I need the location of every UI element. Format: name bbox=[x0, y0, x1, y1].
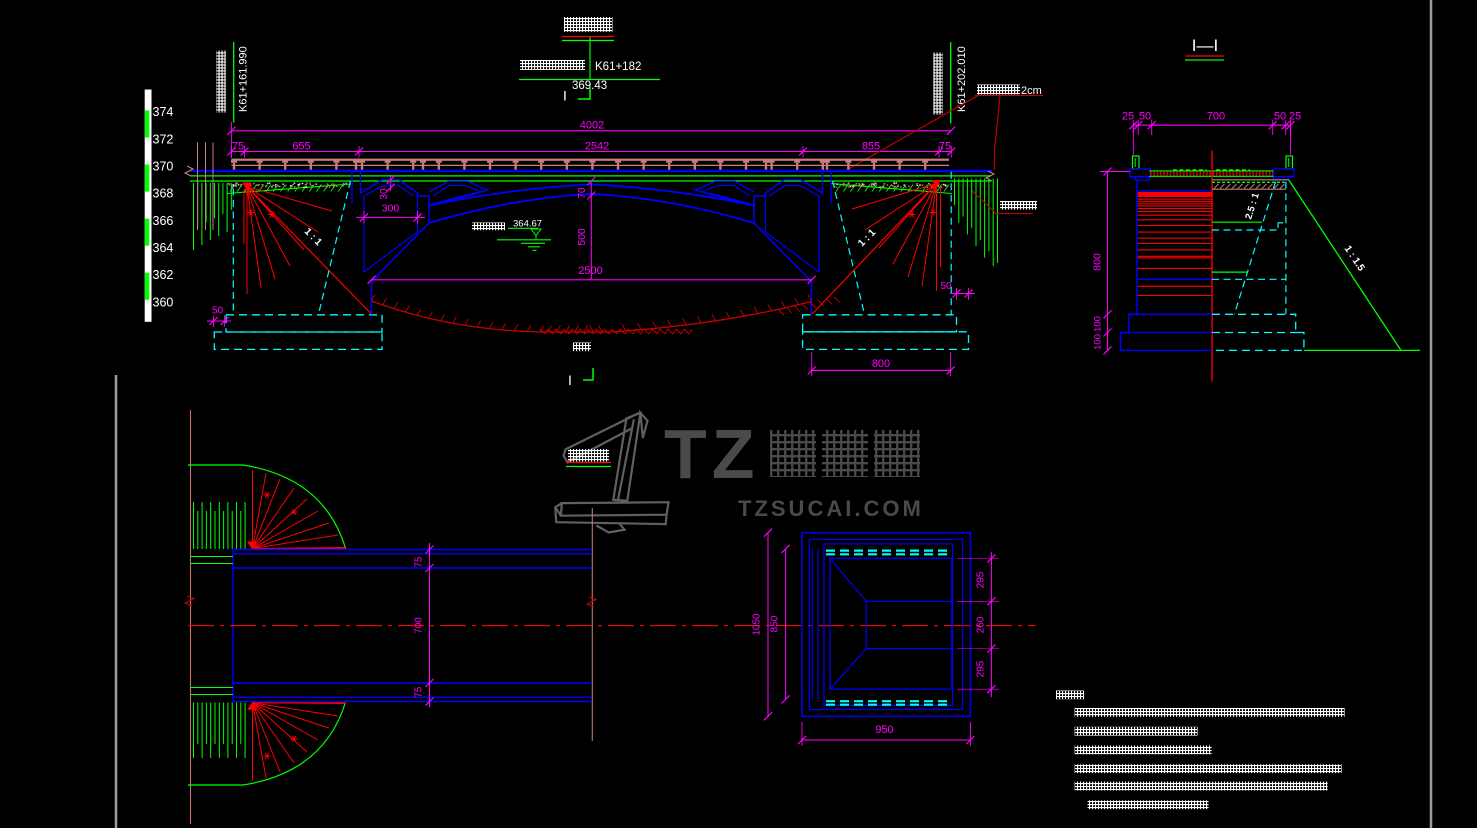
svg-text:50: 50 bbox=[940, 281, 952, 292]
svg-text:2.5 : 1: 2.5 : 1 bbox=[1243, 191, 1262, 221]
svg-text:75: 75 bbox=[414, 686, 425, 698]
svg-text:75: 75 bbox=[414, 556, 425, 568]
svg-text:700: 700 bbox=[1207, 111, 1225, 123]
svg-text:TZSUCAI.COM: TZSUCAI.COM bbox=[738, 496, 924, 521]
svg-text:800: 800 bbox=[1092, 253, 1104, 271]
svg-text:I: I bbox=[563, 88, 567, 104]
svg-text:4002: 4002 bbox=[580, 120, 604, 132]
svg-text:655: 655 bbox=[292, 140, 310, 152]
svg-text:100: 100 bbox=[1093, 316, 1104, 332]
svg-text:TZ: TZ bbox=[664, 415, 760, 493]
svg-text:360: 360 bbox=[153, 295, 174, 309]
svg-text:295: 295 bbox=[976, 660, 987, 677]
svg-text:260: 260 bbox=[976, 616, 987, 633]
svg-text:1050: 1050 bbox=[752, 613, 763, 636]
svg-text:I—I: I—I bbox=[1192, 36, 1218, 55]
svg-text:100: 100 bbox=[1093, 334, 1104, 350]
svg-text:25: 25 bbox=[1122, 111, 1134, 123]
svg-text:2500: 2500 bbox=[578, 265, 602, 277]
svg-text:374: 374 bbox=[153, 105, 174, 119]
svg-text:362: 362 bbox=[153, 268, 174, 282]
svg-text:I: I bbox=[568, 372, 572, 388]
svg-text:50: 50 bbox=[212, 306, 224, 317]
svg-text:372: 372 bbox=[153, 132, 174, 146]
svg-text:K61+161.990: K61+161.990 bbox=[238, 46, 250, 112]
svg-text:366: 366 bbox=[153, 214, 174, 228]
svg-text:300: 300 bbox=[382, 203, 400, 215]
svg-text:368: 368 bbox=[153, 187, 174, 201]
svg-text:1 : 1: 1 : 1 bbox=[302, 226, 324, 248]
svg-text:850: 850 bbox=[770, 615, 781, 632]
svg-text:855: 855 bbox=[862, 140, 880, 152]
svg-text:1 : 1.5: 1 : 1.5 bbox=[1342, 244, 1367, 274]
svg-text:295: 295 bbox=[976, 571, 987, 588]
svg-text:370: 370 bbox=[153, 160, 174, 174]
svg-text:75: 75 bbox=[232, 140, 244, 152]
svg-text:2542: 2542 bbox=[585, 140, 609, 152]
svg-text:75: 75 bbox=[939, 140, 951, 152]
svg-text:K61+182: K61+182 bbox=[595, 61, 641, 73]
svg-text:50: 50 bbox=[1139, 111, 1151, 123]
svg-text:364: 364 bbox=[153, 241, 174, 255]
svg-text:50: 50 bbox=[1274, 111, 1286, 123]
svg-text:500: 500 bbox=[576, 228, 588, 246]
svg-text:25: 25 bbox=[1289, 111, 1301, 123]
svg-text:70: 70 bbox=[577, 187, 588, 199]
svg-text:1 : 1: 1 : 1 bbox=[856, 227, 878, 249]
svg-text:800: 800 bbox=[872, 358, 890, 370]
svg-text:950: 950 bbox=[875, 724, 893, 736]
